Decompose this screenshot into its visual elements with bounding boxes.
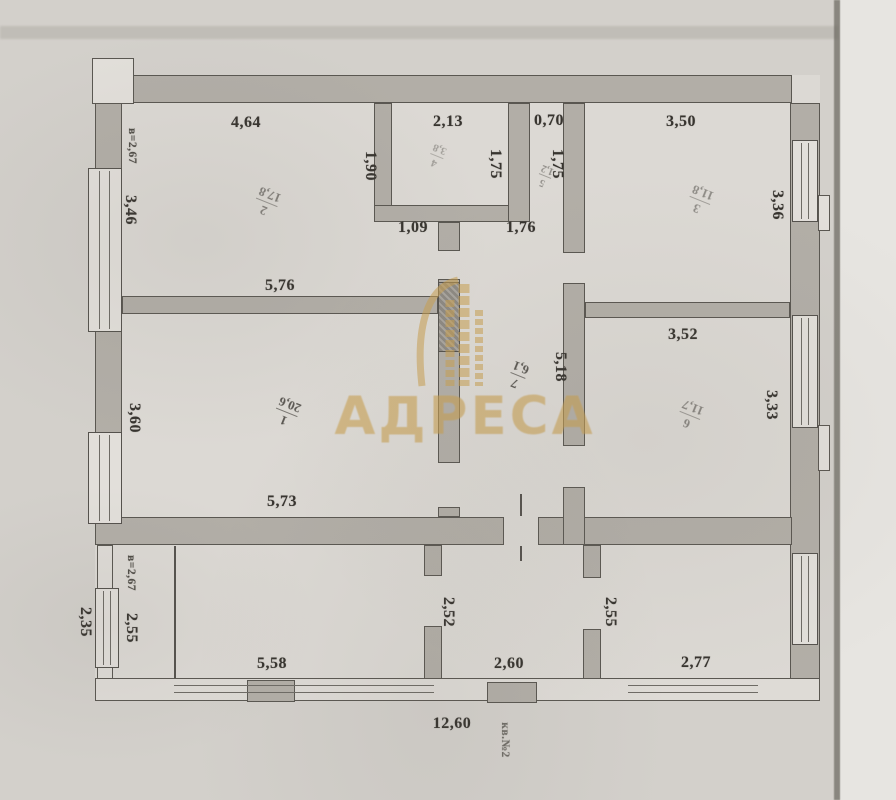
- window-right-1: [792, 140, 818, 222]
- window-right-3: [792, 553, 818, 645]
- dim-bath-right: 1,75: [486, 149, 504, 179]
- dim-apartment-no: кв.№2: [499, 722, 511, 758]
- dim-veranda-left-outer: 2,35: [76, 607, 94, 637]
- scan-artifact-right-line: [834, 0, 840, 800]
- wall-house-bottom: [95, 517, 792, 545]
- floor-plan-scan: 4,64 2,13 0,70 3,50 1,09 1,76 5,76 3,52 …: [0, 0, 896, 800]
- dim-total-width: 12,60: [433, 715, 472, 733]
- dim-veranda-bottom-left: 5,58: [257, 655, 287, 673]
- wall-bath-right: [508, 103, 530, 222]
- door-opening-veranda: [503, 517, 539, 545]
- dim-bath-below-left: 1,09: [398, 219, 428, 237]
- door-opening-hall-left-lower: [438, 462, 460, 508]
- window-right-2: [792, 315, 818, 428]
- window-veranda-left: [95, 588, 119, 668]
- wall-top: [95, 75, 792, 103]
- porch-step-center: [487, 682, 537, 703]
- window-veranda-bottom-right: [628, 679, 758, 700]
- dim-veranda-left-inner: 2,55: [122, 613, 140, 643]
- dim-veranda-bottom-mid: 2,60: [494, 655, 524, 673]
- window-sill-right-1: [818, 195, 830, 231]
- dim-room3-right: 3,36: [768, 190, 786, 220]
- wall-room3-room6-divider: [585, 302, 790, 318]
- dim-room6-top: 3,52: [668, 326, 698, 344]
- dim-room2-bottom: 5,76: [265, 277, 295, 295]
- veranda-partition-right-opening: [583, 577, 601, 630]
- scan-paper-right-edge: [840, 0, 896, 800]
- door-opening-room3: [563, 252, 585, 284]
- door-tick-upper: [520, 494, 522, 516]
- dim-room2-left: 3,46: [121, 195, 139, 225]
- dim-veranda-part-left: 2,52: [439, 597, 457, 627]
- window-left-upper: [88, 168, 122, 332]
- dim-room3-top: 3,50: [666, 113, 696, 131]
- dim-room1-bottom: 5,73: [267, 493, 297, 511]
- dim-veranda-part-right: 2,55: [601, 597, 619, 627]
- dim-room6-right: 3,33: [762, 390, 780, 420]
- dim-room1-left: 3,60: [125, 403, 143, 433]
- dim-bath-left: 1,90: [361, 151, 379, 181]
- dim-bath-top: 2,13: [433, 113, 463, 131]
- chimney-flue-block: [438, 282, 460, 352]
- dim-hall-right: 5,18: [551, 352, 569, 382]
- wall-room1-room2-divider: [122, 296, 438, 314]
- dim-room2-top: 4,64: [231, 114, 261, 132]
- dim-ceiling-height-veranda: в=2,67: [125, 555, 137, 591]
- corner-pier-top-left: [92, 58, 134, 104]
- window-veranda-bottom-left: [174, 679, 434, 700]
- door-opening-room6: [563, 445, 585, 488]
- dim-wc-right: 1,75: [548, 149, 566, 179]
- scan-artifact-top-band: [0, 26, 838, 39]
- window-sill-right-2: [818, 425, 830, 471]
- veranda-partition-line: [174, 546, 176, 678]
- dim-ceiling-height-top: в=2,67: [126, 128, 138, 164]
- window-left-lower: [88, 432, 122, 524]
- dim-wc-top: 0,70: [534, 112, 564, 130]
- door-opening-hall-left-upper: [438, 250, 460, 280]
- dim-veranda-bottom-right: 2,77: [681, 654, 711, 672]
- dim-bath-below-right: 1,76: [506, 219, 536, 237]
- door-tick-lower: [520, 546, 522, 561]
